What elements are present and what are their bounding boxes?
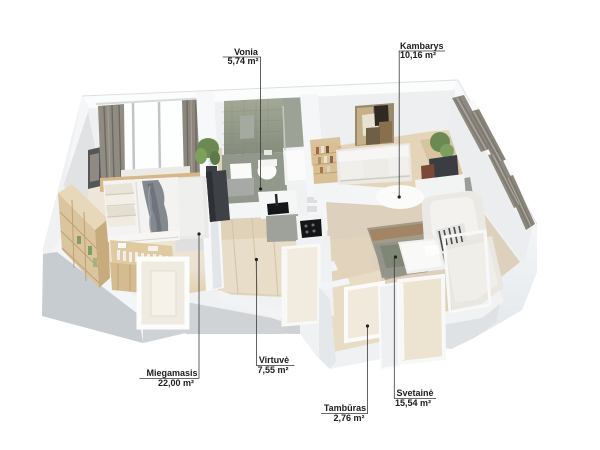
svg-text:2,76 m²: 2,76 m² xyxy=(333,413,364,423)
svg-text:22,00 m²: 22,00 m² xyxy=(158,378,194,388)
svg-text:5,74 m²: 5,74 m² xyxy=(227,56,258,66)
svg-text:Virtuvė: Virtuvė xyxy=(259,355,289,365)
svg-text:Tambūras: Tambūras xyxy=(324,403,366,413)
svg-text:15,54 m²: 15,54 m² xyxy=(395,398,431,408)
svg-text:10,16 m²: 10,16 m² xyxy=(400,50,436,60)
svg-text:Miegamasis: Miegamasis xyxy=(146,368,197,378)
svg-text:7,55 m²: 7,55 m² xyxy=(257,365,288,375)
svg-text:Svetainė: Svetainė xyxy=(396,388,433,398)
